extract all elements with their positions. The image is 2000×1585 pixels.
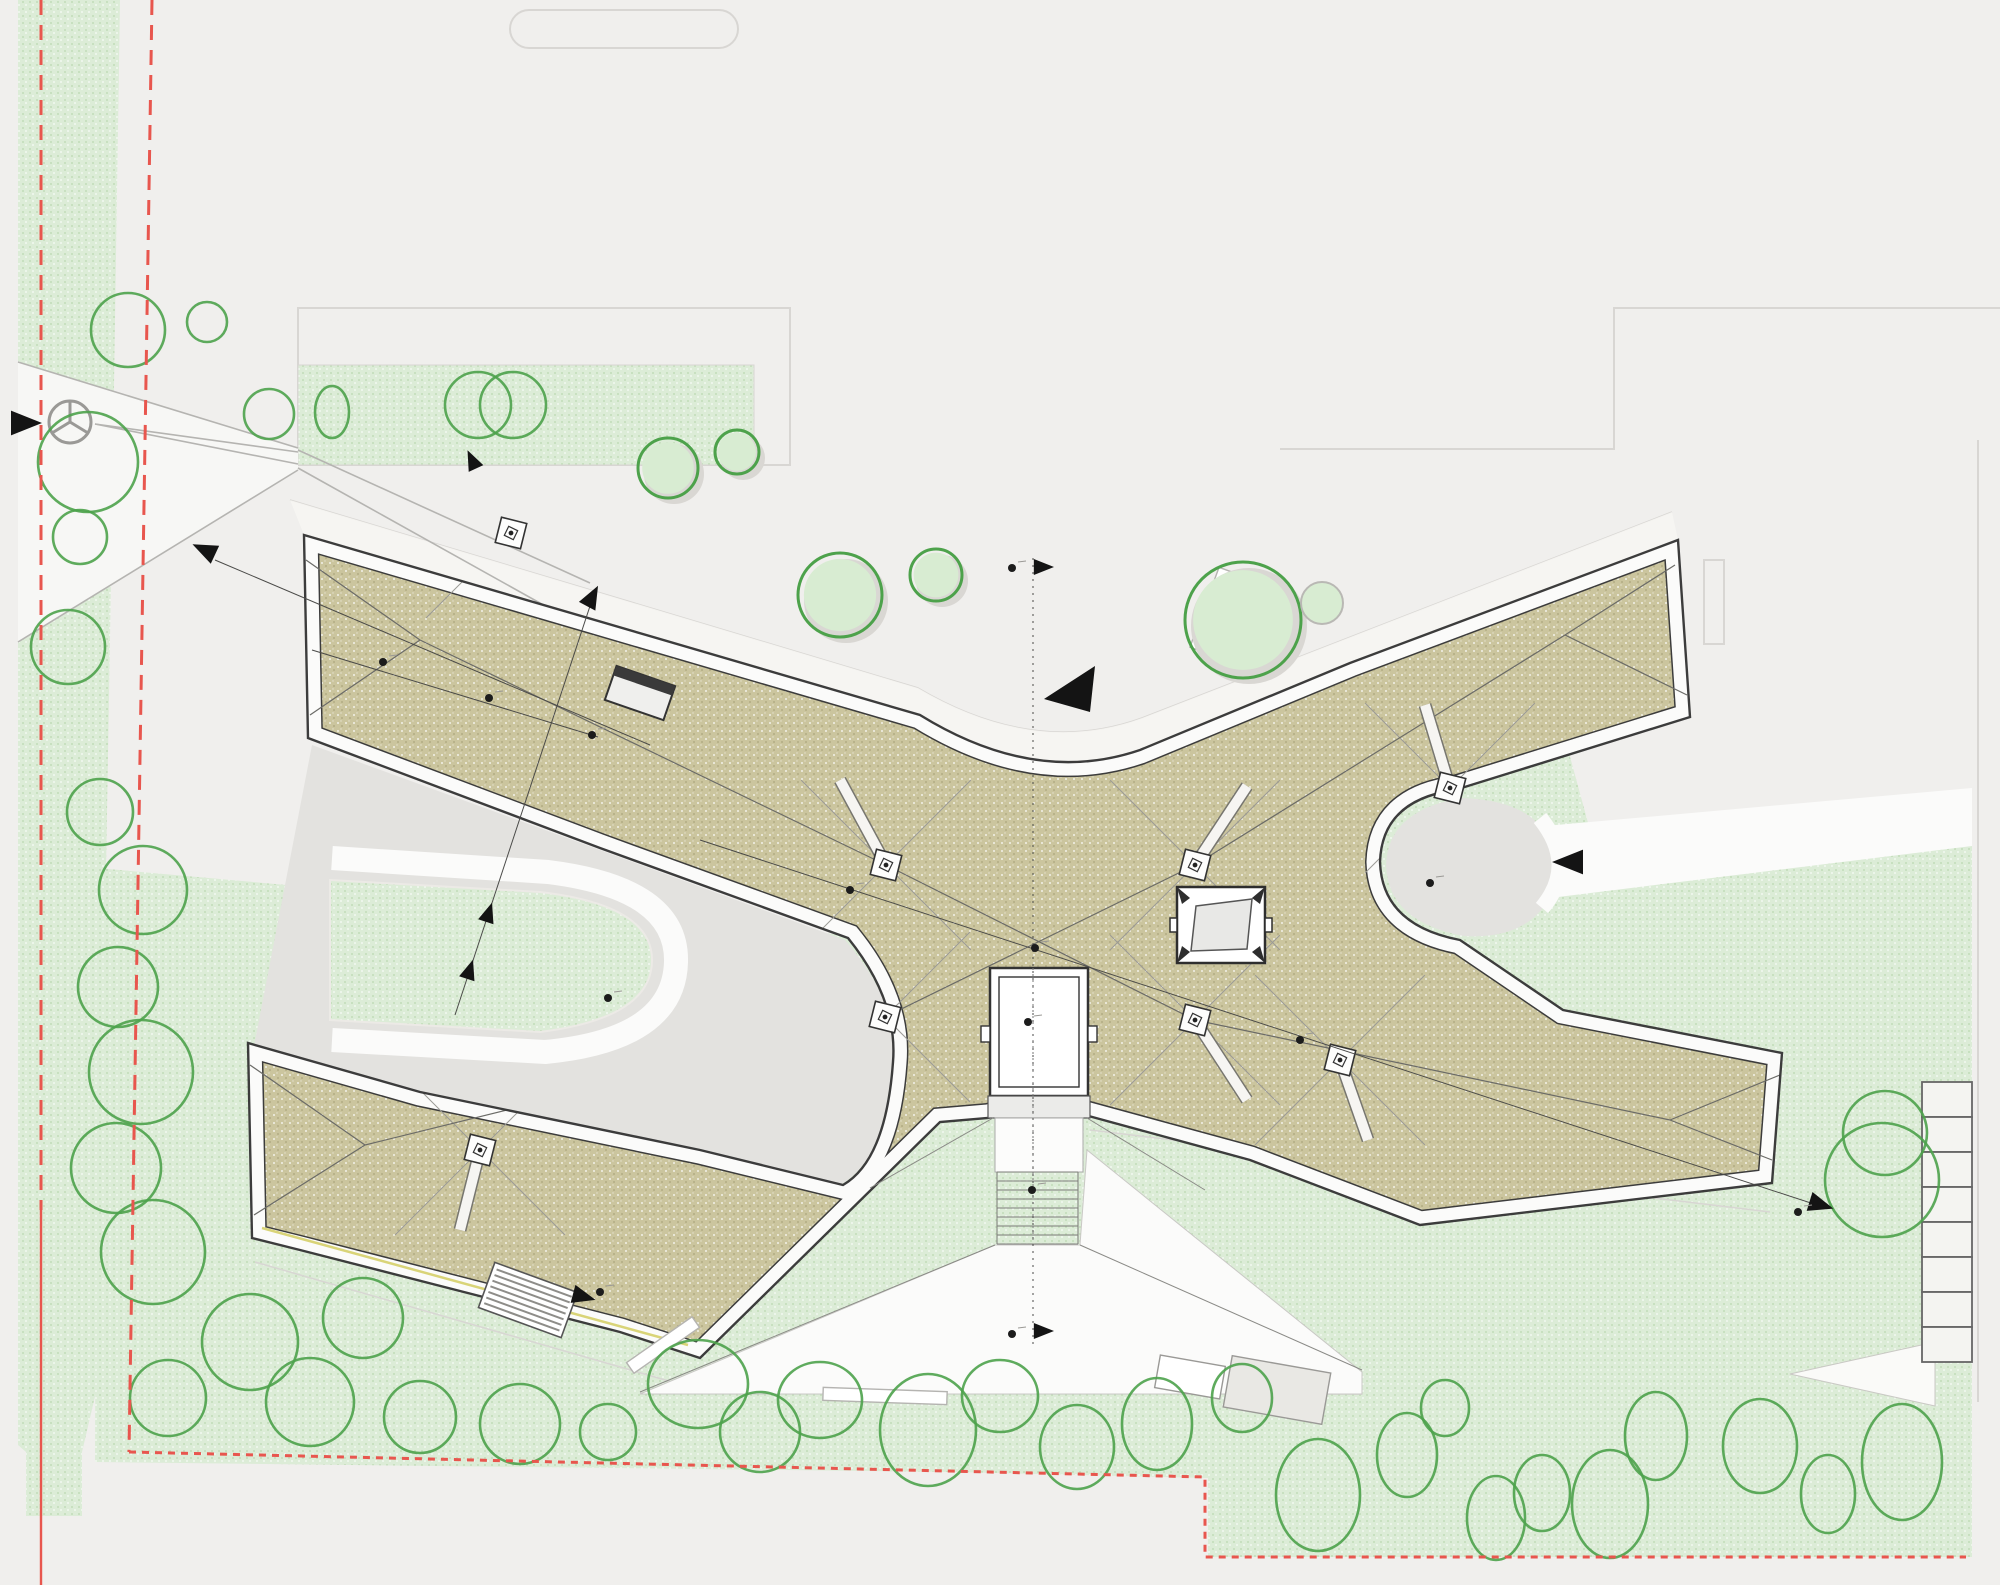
spot-dot <box>1296 1036 1304 1044</box>
spot-dot <box>588 731 596 739</box>
parking-stall <box>1922 1327 1972 1362</box>
spot-dot <box>1024 1018 1032 1026</box>
parking-stall <box>1922 1152 1972 1187</box>
spot-dot <box>379 658 387 666</box>
central-skylight <box>1170 887 1272 963</box>
spot-dot <box>596 1288 604 1296</box>
spot-dot <box>604 994 612 1002</box>
tree-canopy <box>718 433 756 471</box>
parking-stall <box>1922 1082 1972 1117</box>
roof-drain-icon <box>1434 772 1466 804</box>
spot-dot <box>485 694 493 702</box>
parking-stall <box>1922 1187 1972 1222</box>
spot-dot <box>1008 1330 1016 1338</box>
spot-dot <box>1031 944 1039 952</box>
spot-dot <box>1794 1208 1802 1216</box>
roof-drain-icon <box>464 1134 496 1166</box>
west-verge-notch <box>26 1452 82 1516</box>
tree-canopy <box>642 442 694 494</box>
spot-dot <box>1426 879 1434 887</box>
roof-drain-icon <box>869 1001 901 1033</box>
roof-drain-icon <box>870 849 902 881</box>
parking-stall <box>1922 1292 1972 1327</box>
tree-canopy <box>914 553 959 598</box>
stair-opening <box>990 968 1088 1096</box>
site-plan-drawing <box>0 0 2000 1585</box>
spot-dot <box>1028 1186 1036 1194</box>
spot-dot <box>846 886 854 894</box>
stair-landing <box>988 1096 1090 1118</box>
site-plan-canvas <box>0 0 2000 1585</box>
spot-dot <box>1008 564 1016 572</box>
tree-canopy <box>1193 570 1293 670</box>
stair-upper-flight <box>995 1118 1083 1172</box>
parking-stall <box>1922 1257 1972 1292</box>
tree-canopy <box>804 559 876 631</box>
bush-icon <box>1301 582 1343 624</box>
parking-stalls <box>1922 1082 1972 1362</box>
roof-drain-icon <box>1179 1004 1211 1036</box>
roof-drain-icon <box>1179 849 1211 881</box>
roof-drain-icon <box>495 517 527 549</box>
parking-stall <box>1922 1222 1972 1257</box>
